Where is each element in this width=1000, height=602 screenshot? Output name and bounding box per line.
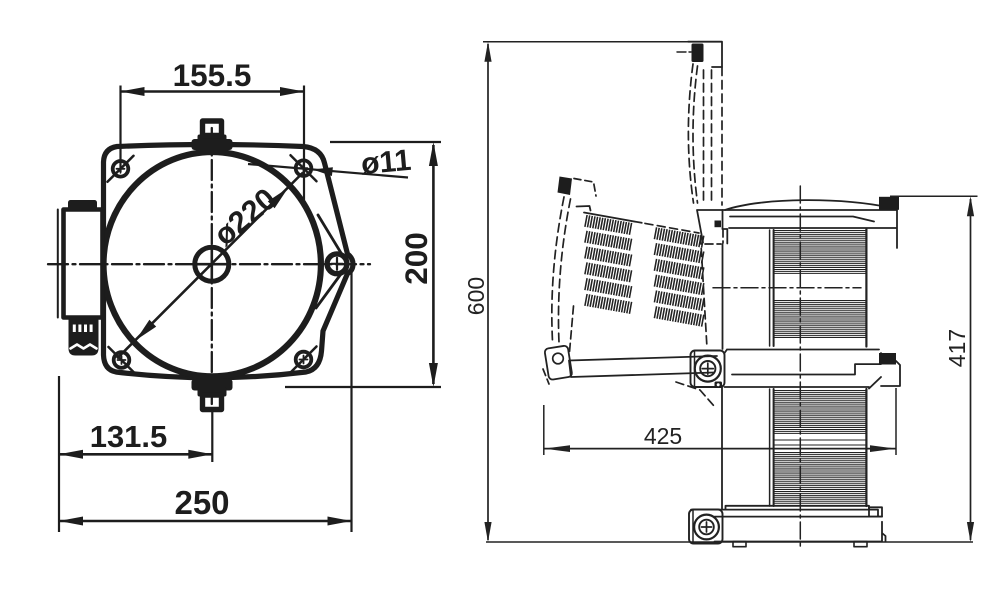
svg-text:250: 250: [174, 484, 229, 521]
svg-text:417: 417: [944, 329, 970, 367]
svg-text:155.5: 155.5: [173, 57, 252, 93]
svg-text:ø11: ø11: [360, 144, 413, 181]
svg-text:425: 425: [644, 423, 682, 449]
svg-text:600: 600: [463, 277, 489, 315]
svg-text:200: 200: [398, 232, 434, 285]
svg-text:131.5: 131.5: [90, 419, 168, 454]
